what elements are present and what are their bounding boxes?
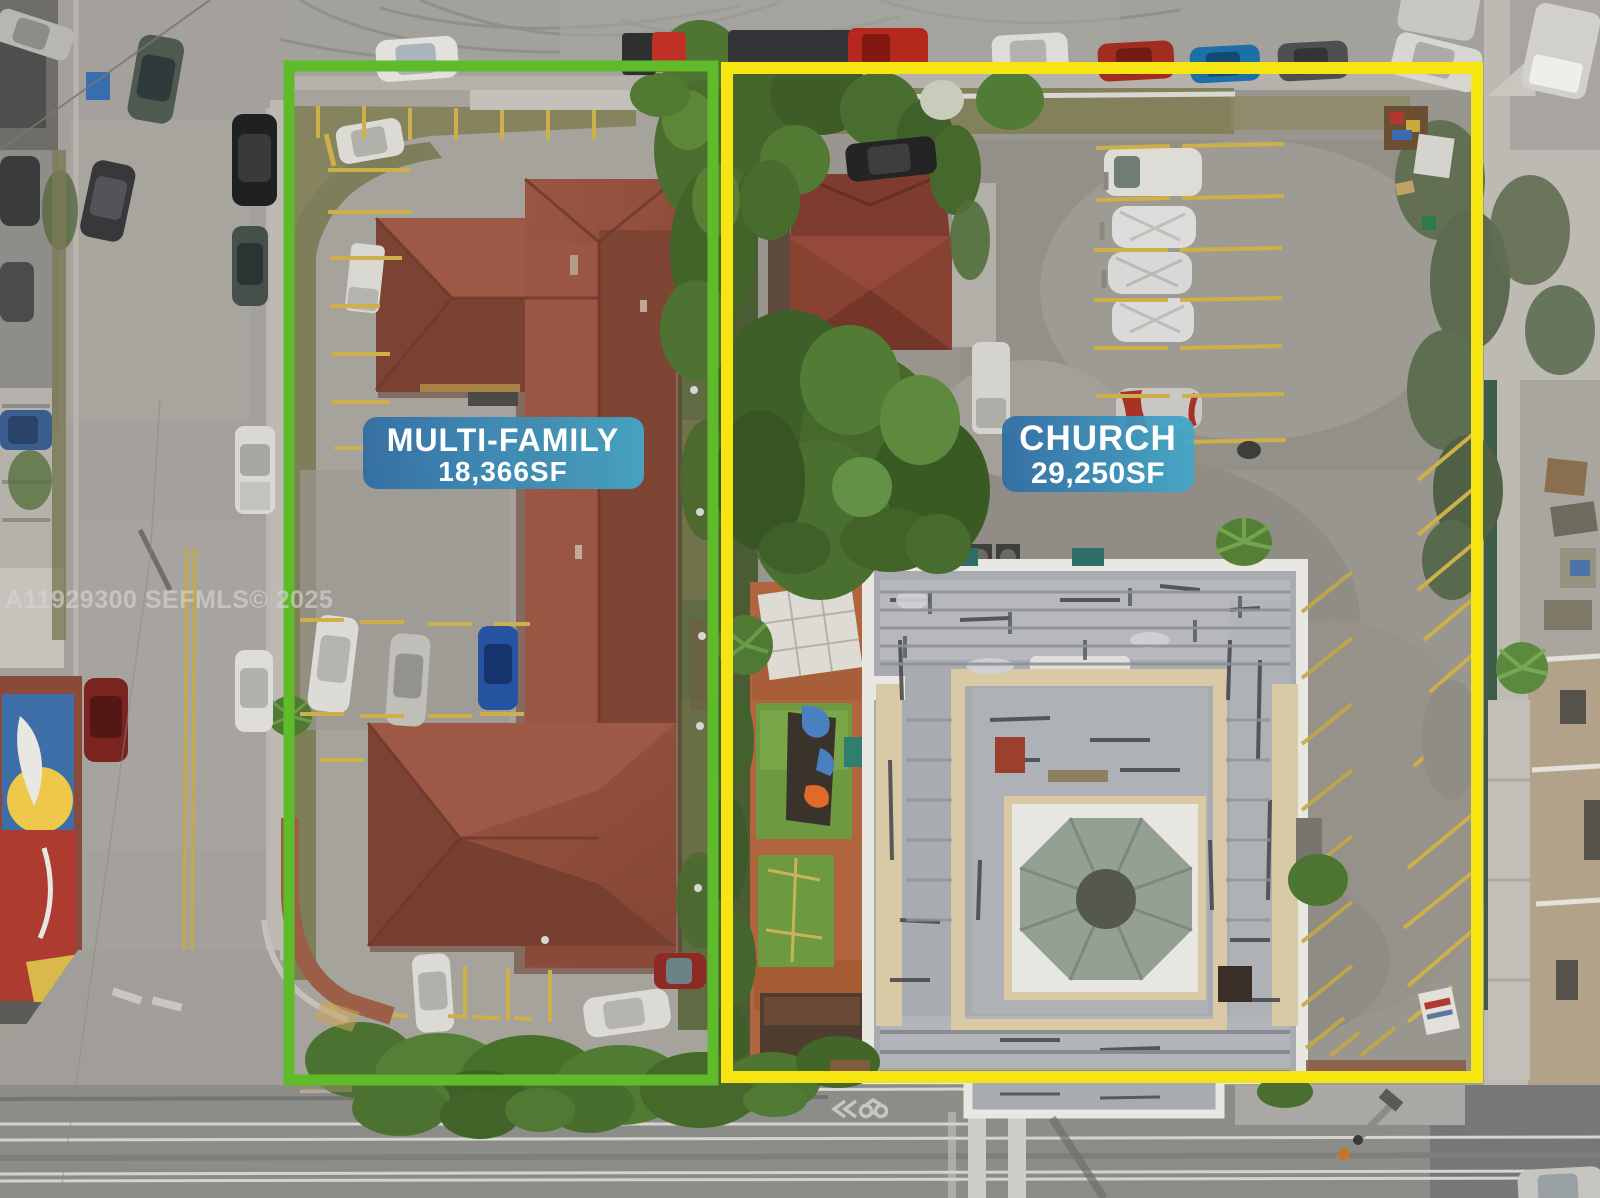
- svg-text:CHURCH: CHURCH: [1019, 419, 1177, 458]
- svg-text:MULTI-FAMILY: MULTI-FAMILY: [387, 422, 619, 458]
- svg-text:18,366SF: 18,366SF: [438, 456, 567, 487]
- svg-text:29,250SF: 29,250SF: [1031, 457, 1165, 490]
- svg-text:A11929300 SEFMLS© 2025: A11929300 SEFMLS© 2025: [5, 586, 333, 614]
